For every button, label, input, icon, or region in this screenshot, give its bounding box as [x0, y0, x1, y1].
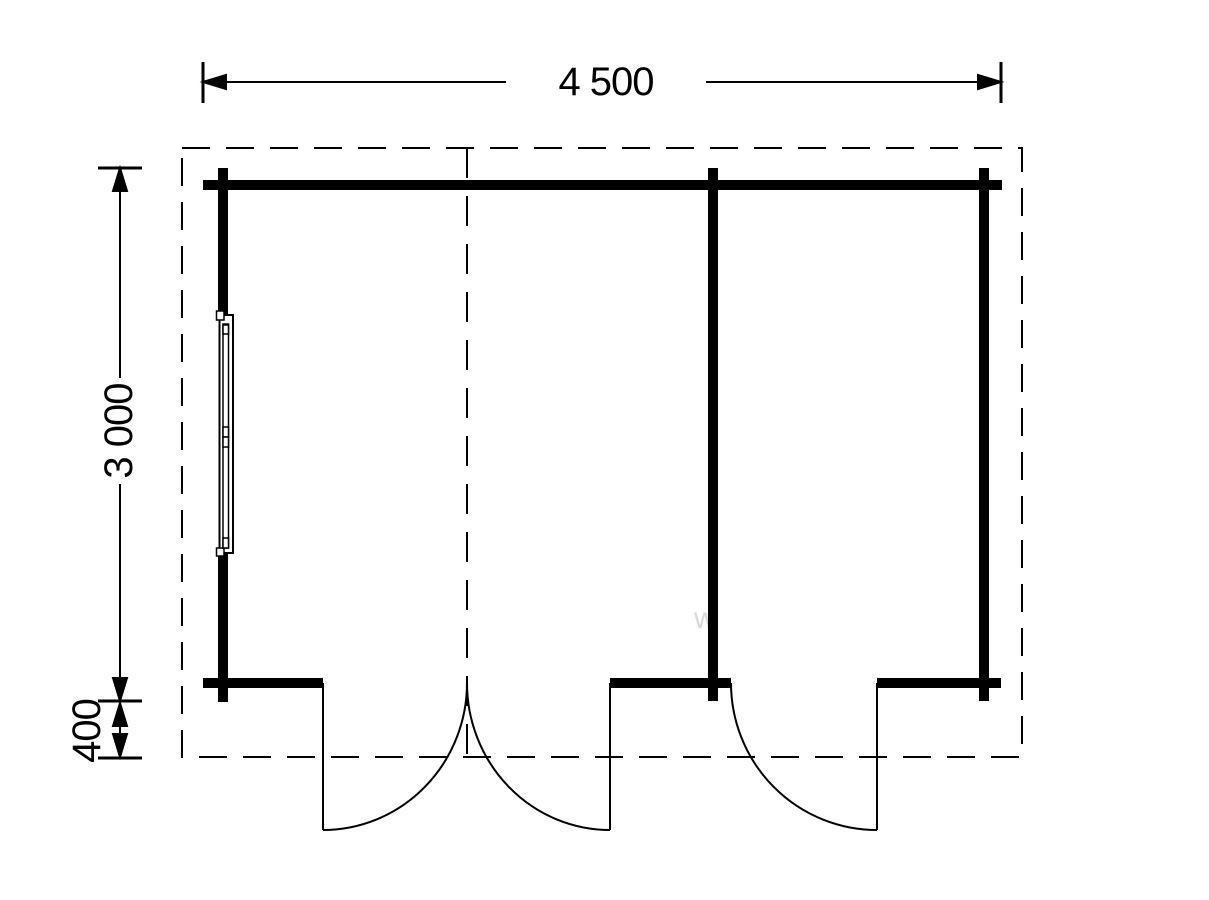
floor-plan-drawing — [0, 0, 1209, 900]
width-dim-arrow-left — [203, 75, 226, 89]
walls — [203, 168, 1002, 702]
height-dim-arrow-bottom — [113, 678, 127, 701]
overhang-dim-arrow-top — [113, 703, 127, 726]
window-frame-block-bottom — [223, 538, 229, 548]
height-dim-arrow-top — [113, 168, 127, 191]
width-dimension-label: 4 500 — [506, 60, 706, 104]
window-frame-block-mid-a — [223, 427, 229, 437]
overhang-dimension-label: 400 — [65, 671, 109, 791]
roof-overhang-outline — [182, 148, 1022, 757]
height-dimension-label: 3 000 — [97, 321, 141, 541]
overhang-dim-arrow-bottom — [113, 734, 127, 757]
window-symbol — [217, 311, 234, 556]
window-frame-block-mid-b — [223, 437, 229, 447]
width-dim-arrow-right — [978, 75, 1001, 89]
window-frame-block-top — [223, 325, 229, 334]
floor-plan-canvas: w — [0, 0, 1209, 900]
